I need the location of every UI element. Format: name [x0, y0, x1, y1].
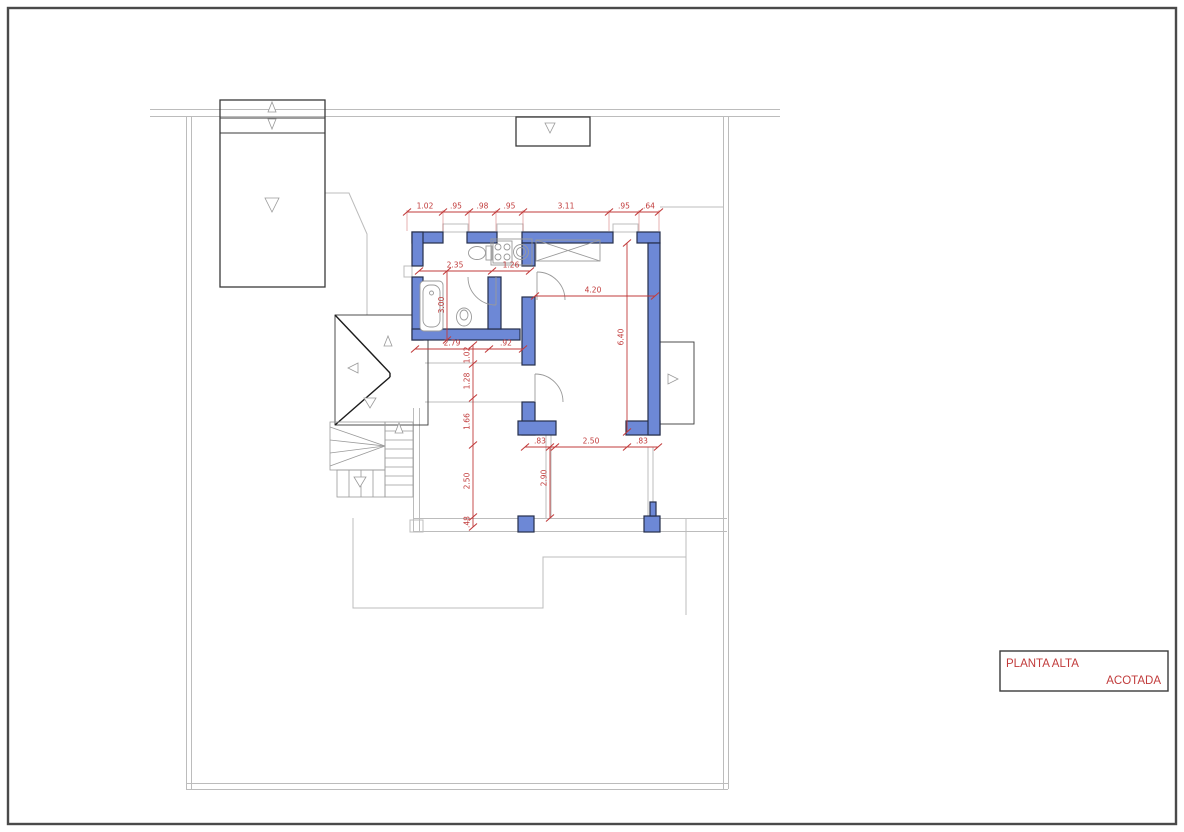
title-block-subtitle: ACOTADA	[1106, 675, 1161, 687]
slope-arrow-down-icon	[265, 198, 279, 212]
roof-hatched-small	[516, 117, 590, 146]
title-block: PLANTA ALTA ACOTADA	[1000, 651, 1168, 691]
dim-label: 2.79	[444, 339, 461, 348]
stair-arrow-up-icon	[395, 423, 403, 433]
bidet-icon	[457, 308, 472, 326]
toilet-icon	[469, 247, 486, 260]
roof-hatched-large	[220, 100, 325, 287]
dim-label: .98	[477, 202, 489, 211]
dim-label: 3.11	[558, 202, 575, 211]
site-boundary	[150, 110, 780, 790]
dim-label: .92	[500, 339, 512, 348]
slope-arrow-right-icon	[668, 374, 678, 384]
dim-label: .95	[504, 202, 516, 211]
dim-label: 2.50	[583, 437, 600, 446]
slope-arrow-down-icon	[545, 123, 555, 133]
dim-label: 3.00	[437, 296, 446, 313]
staircase	[330, 422, 413, 497]
dim-label: 2.50	[463, 472, 472, 489]
slope-arrow-left-icon	[348, 363, 358, 373]
drawing-sheet: 1.02 .95 .98 .95 3.11 .95 .64 2.35 1.26 …	[0, 0, 1184, 832]
column	[644, 516, 660, 532]
dim-label: 6.40	[617, 328, 626, 345]
floor-plan-canvas: 1.02 .95 .98 .95 3.11 .95 .64 2.35 1.26 …	[0, 0, 1184, 832]
dim-label: 1.02	[417, 202, 434, 211]
walls	[412, 232, 660, 532]
dim-label: .95	[618, 202, 630, 211]
roof-balcony-right	[658, 342, 694, 424]
dim-label: 2.90	[540, 469, 549, 486]
dim-label: .95	[450, 202, 462, 211]
dim-label: .48	[463, 516, 472, 528]
dim-label: .83	[534, 437, 546, 446]
title-block-project: PLANTA ALTA	[1006, 658, 1079, 670]
sheet-border	[8, 8, 1176, 824]
slope-arrow-down-icon	[364, 398, 376, 408]
dim-label: 1.26	[503, 261, 520, 270]
dim-label: 1.66	[463, 413, 472, 430]
slope-arrow-up-icon	[268, 102, 276, 112]
stair-arrow-down-icon	[354, 477, 366, 487]
column	[518, 516, 534, 532]
dim-label: .83	[636, 437, 648, 446]
slope-arrow-down-icon	[268, 119, 276, 129]
dim-label: 1.28	[463, 372, 472, 389]
dim-label: 2.35	[447, 261, 464, 270]
dim-label: .64	[643, 202, 655, 211]
slope-arrow-up-icon	[384, 336, 392, 346]
dim-label: 4.20	[585, 286, 602, 295]
dim-label: 1.02	[463, 346, 472, 363]
